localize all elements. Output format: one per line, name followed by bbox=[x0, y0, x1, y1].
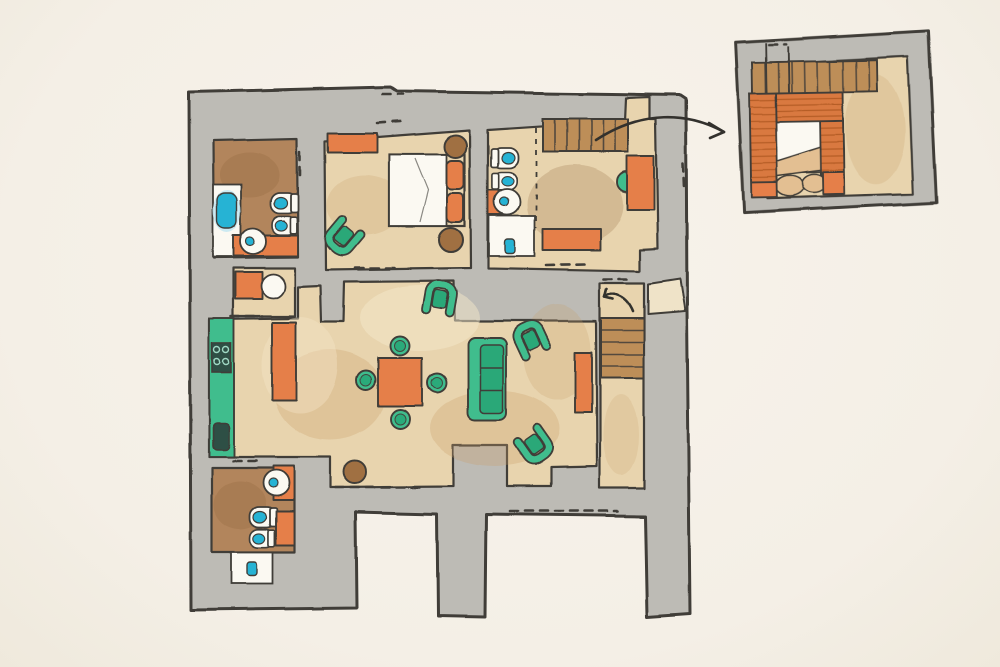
round-washbasin bbox=[240, 228, 266, 254]
shower-fixture bbox=[505, 239, 515, 253]
toilet bbox=[250, 507, 277, 527]
toilet bbox=[491, 148, 518, 168]
stair-strip bbox=[543, 119, 628, 152]
sofa bbox=[468, 338, 506, 420]
bidet bbox=[492, 172, 516, 190]
pillow bbox=[447, 160, 464, 189]
fireplace-left-jamb bbox=[750, 93, 778, 196]
shower bbox=[489, 216, 535, 256]
sideboard bbox=[575, 352, 592, 412]
desk bbox=[627, 156, 654, 210]
dresser bbox=[328, 133, 377, 152]
utility-alcove bbox=[233, 268, 295, 316]
low-cabinet bbox=[543, 229, 600, 250]
utility-basin bbox=[261, 274, 285, 298]
round-washbasin bbox=[263, 470, 289, 496]
kitchen-sink bbox=[213, 424, 229, 450]
nightstand bbox=[439, 228, 463, 252]
dining-stool bbox=[428, 374, 447, 393]
stair-hall bbox=[600, 283, 644, 488]
detail-callout-inset bbox=[735, 31, 936, 212]
room-bedroom bbox=[325, 130, 471, 270]
floor-plan-drawing bbox=[0, 0, 1000, 667]
room-ensuite-bathroom bbox=[213, 139, 298, 258]
bidet bbox=[272, 216, 297, 234]
watercolor-paper bbox=[0, 0, 1000, 667]
dining-table bbox=[378, 358, 422, 406]
dining-stool bbox=[357, 371, 376, 390]
toilet bbox=[271, 193, 298, 213]
entry-porch bbox=[648, 279, 685, 314]
dining-stool bbox=[391, 410, 410, 429]
shower-fixture bbox=[247, 562, 257, 576]
hearth-stone bbox=[776, 176, 804, 196]
hearth-base bbox=[823, 172, 844, 194]
utility-counter bbox=[235, 272, 262, 299]
island-counter bbox=[272, 322, 296, 400]
staircase bbox=[601, 318, 644, 378]
side-table bbox=[344, 461, 366, 483]
inset-stair-strip bbox=[752, 60, 878, 93]
round-washbasin bbox=[494, 189, 520, 215]
cabinet bbox=[276, 511, 294, 545]
pillow bbox=[447, 193, 464, 222]
dining-stool bbox=[391, 337, 410, 356]
nightstand bbox=[445, 135, 467, 157]
armchair bbox=[426, 283, 454, 313]
hob bbox=[212, 343, 231, 373]
shower bbox=[231, 552, 273, 584]
bathtub bbox=[217, 193, 237, 228]
main-floor-plan bbox=[189, 87, 690, 617]
hearth-base bbox=[751, 182, 777, 197]
bidet bbox=[250, 529, 275, 547]
